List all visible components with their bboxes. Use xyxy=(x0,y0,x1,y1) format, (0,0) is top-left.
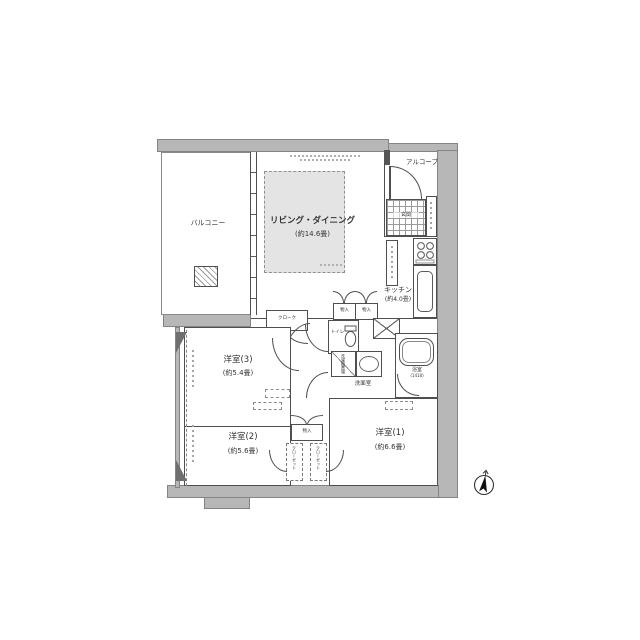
fine-print-note xyxy=(300,159,350,161)
kitchen-label: キッチン xyxy=(381,286,415,295)
bedroom1-size: (約6.6畳) xyxy=(350,443,430,452)
bedroom1-label: 洋室(1) xyxy=(350,428,430,439)
ceiling-note-box xyxy=(253,402,282,410)
entrance-door-arc xyxy=(390,166,422,199)
storage-door-arc xyxy=(355,291,366,303)
ceiling-note-box xyxy=(265,389,290,398)
bedroom3-label: 洋室(3) xyxy=(198,355,278,366)
ceiling-note-box xyxy=(385,401,413,410)
balcony-boundary-dashed xyxy=(186,330,187,486)
washroom-label: 洗面室 xyxy=(343,381,383,388)
floorplan-canvas: バルコニー リビング・ダイニング (約14.6畳) アルコーブ 玄関 キッチン … xyxy=(0,0,640,640)
balcony-label: バルコニー xyxy=(178,219,238,228)
storage2-label: 物入 xyxy=(356,308,377,314)
wall-bottom-step xyxy=(204,497,250,509)
stove xyxy=(413,238,437,265)
compass-north-icon xyxy=(468,468,500,500)
washroom-door-arc xyxy=(306,372,328,398)
alcove-label: アルコーブ xyxy=(392,158,452,166)
entrance-door-leaf xyxy=(389,166,391,199)
door-frame-block xyxy=(384,150,390,165)
closet-panel: クローゼット xyxy=(286,443,303,481)
wall-mid-left xyxy=(163,314,251,327)
railing-note-marks xyxy=(192,425,194,465)
storage3-label: 物入 xyxy=(292,429,322,435)
wall-right xyxy=(437,150,458,498)
closet1-label: クローゼット xyxy=(292,446,297,470)
living-dining-label: リビング・ダイニング xyxy=(255,216,370,227)
kitchen-size: (約4.0畳) xyxy=(379,296,417,304)
storage-door-arc xyxy=(344,291,355,303)
laundry-cabinet: 洗濯機置場 xyxy=(331,351,356,377)
rug-fine-print xyxy=(320,264,344,266)
stove-burners-icon xyxy=(414,239,436,264)
cloak-label: クローク xyxy=(268,316,306,322)
balcony-outline xyxy=(161,152,251,315)
bathtub-inner-line xyxy=(402,341,431,363)
kitchen-counter-marks xyxy=(391,246,393,280)
wall-kitchen-north xyxy=(384,236,437,237)
vanity-basin-icon xyxy=(359,356,379,372)
wall-living-east xyxy=(384,164,385,237)
kitchen-sink xyxy=(417,271,433,312)
wall-top xyxy=(157,139,389,152)
toilet-fixture-icon xyxy=(344,325,358,350)
closet2-label: クローゼット xyxy=(316,446,321,470)
entrance-label: 玄関 xyxy=(393,212,419,218)
living-dining-size: (約14.6畳) xyxy=(255,230,370,239)
bedroom1 xyxy=(329,398,438,486)
closet-panel: クローゼット xyxy=(310,443,327,481)
bedroom2-label: 洋室(2) xyxy=(203,432,283,443)
shoe-cabinet-marks xyxy=(430,202,432,230)
storage-door-arc xyxy=(333,291,344,303)
fine-print-note xyxy=(290,155,362,157)
bedroom3-size: (約5.4畳) xyxy=(198,369,278,378)
railing-note-marks xyxy=(192,350,194,390)
storage1-label: 物入 xyxy=(334,308,355,314)
evacuation-hatch-icon xyxy=(194,266,218,287)
laundry-label: 洗濯機置場 xyxy=(341,354,346,374)
storage-door-arc xyxy=(366,291,377,303)
